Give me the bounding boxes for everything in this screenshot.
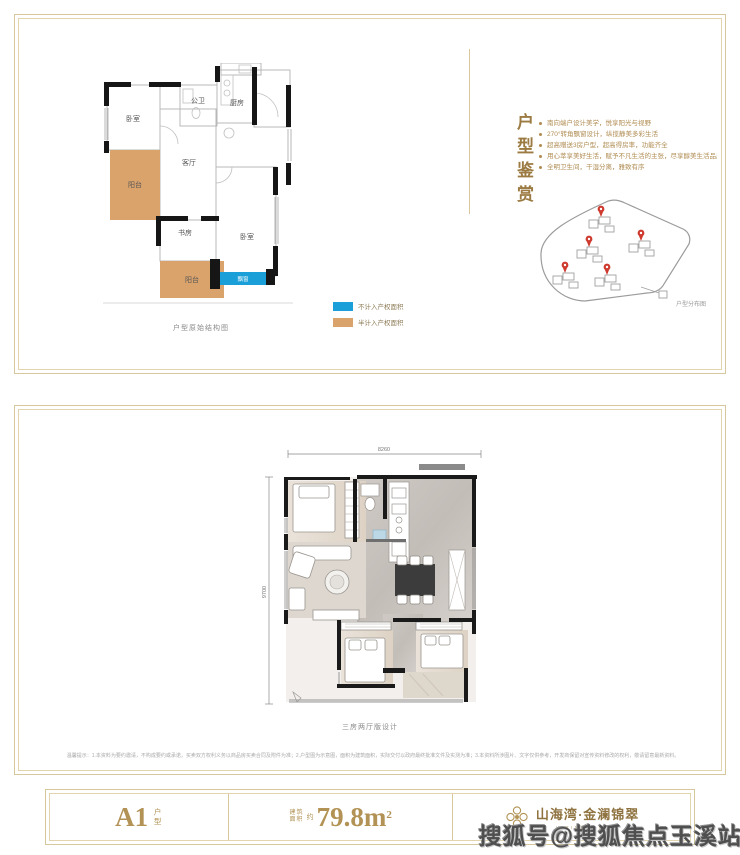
panel2-inner: 8260 9700 <box>18 409 722 771</box>
unit-distribution-map: 户型分布图 <box>513 191 717 319</box>
disclaimer-text: 温馨提示：1.本资料为要约邀请，不构成要约或承诺，买卖双方权利义务以商品房买卖合… <box>39 752 707 759</box>
dim-width: 8260 <box>378 447 390 453</box>
appreciation-bullet: 南向端户设计美学，悦享阳光与视野 <box>539 118 717 129</box>
room-label-bedroom1: 卧室 <box>126 114 140 123</box>
area-prefix-top: 建筑 <box>290 810 304 817</box>
room-label-study: 书房 <box>178 228 192 237</box>
legend-row-blue: 不计入产权面积 <box>333 301 404 311</box>
building-3 <box>629 241 654 256</box>
dim-height: 9700 <box>262 586 268 598</box>
appreciation-list: 南向端户设计美学，悦享阳光与视野 270°转角飘窗设计，纵揽静美多彩生活 超高赠… <box>539 118 717 173</box>
building-4 <box>553 273 578 288</box>
room-label-living: 客厅 <box>182 158 196 167</box>
panel-designed-plan: 8260 9700 <box>14 405 726 775</box>
building-2 <box>577 247 602 262</box>
area-legend: 不计入产权面积 半计入产权面积 <box>333 301 404 333</box>
legend-row-tan: 半计入产权面积 <box>333 317 404 327</box>
area-prefix-bottom: 面积 <box>290 817 304 824</box>
area-prefix: 建筑 面积 <box>290 810 304 824</box>
footer-unit-cell: A1 户型 <box>50 794 229 840</box>
panel-original-structure: 卧室 公卫 厨房 阳台 客厅 书房 卧室 阳台 飘窗 户型原始结构图 不计入产权… <box>14 14 726 374</box>
area-approx: 约 <box>307 812 314 822</box>
area-superscript: 2 <box>386 809 392 821</box>
legend-label-tan: 半计入产权面积 <box>358 317 404 327</box>
floorplan-original-structure: 卧室 公卫 厨房 阳台 客厅 书房 卧室 阳台 飘窗 <box>101 63 301 311</box>
appreciation-bullet: 用心萃享美好生活，赋予不凡生活的主张，尽享醇美生活品质 <box>539 151 717 162</box>
appreciation-bullet: 全明卫生间，干湿分离，雅致有序 <box>539 162 717 173</box>
plan1-caption: 户型原始结构图 <box>101 323 301 333</box>
building-outside <box>659 291 667 298</box>
room-label-kitchen: 厨房 <box>230 98 244 107</box>
page: 卧室 公卫 厨房 阳台 客厅 书房 卧室 阳台 飘窗 户型原始结构图 不计入产权… <box>0 0 740 855</box>
appreciation-bullet: 270°转角飘窗设计，纵揽静美多彩生活 <box>539 129 717 140</box>
plan2-caption: 三房两厅版设计 <box>19 722 721 732</box>
location-pins <box>562 206 645 275</box>
panel1-inner: 卧室 公卫 厨房 阳台 客厅 书房 卧室 阳台 飘窗 户型原始结构图 不计入产权… <box>18 18 722 370</box>
legend-swatch-blue <box>333 302 353 311</box>
building-1 <box>589 217 614 232</box>
panel1-divider <box>469 49 470 214</box>
appreciation-bullet: 超高赠送3房户型，超高得房率，功能齐全 <box>539 140 717 151</box>
unit-suffix: 户型 <box>152 808 163 827</box>
unit-name: A1 <box>115 802 148 833</box>
sitemap-caption: 户型分布图 <box>676 300 706 308</box>
building-5 <box>595 275 620 290</box>
watermark: 搜狐号@搜狐焦点玉溪站 <box>479 817 740 851</box>
floorplan-designed: 8260 9700 <box>253 442 489 718</box>
room-label-bath: 公卫 <box>191 97 205 105</box>
legend-swatch-tan <box>333 318 353 327</box>
footer-area-cell: 建筑 面积 约 79.8m 2 <box>229 794 453 840</box>
room-label-balcony1: 阳台 <box>128 180 142 189</box>
room-label-bedroom2: 卧室 <box>240 232 254 241</box>
room-label-balcony2: 阳台 <box>185 275 199 284</box>
area-value: 79.8m <box>317 802 387 833</box>
room-label-bay-window: 飘窗 <box>237 275 249 283</box>
dining-table <box>395 564 435 596</box>
legend-label-blue: 不计入产权面积 <box>358 301 404 311</box>
